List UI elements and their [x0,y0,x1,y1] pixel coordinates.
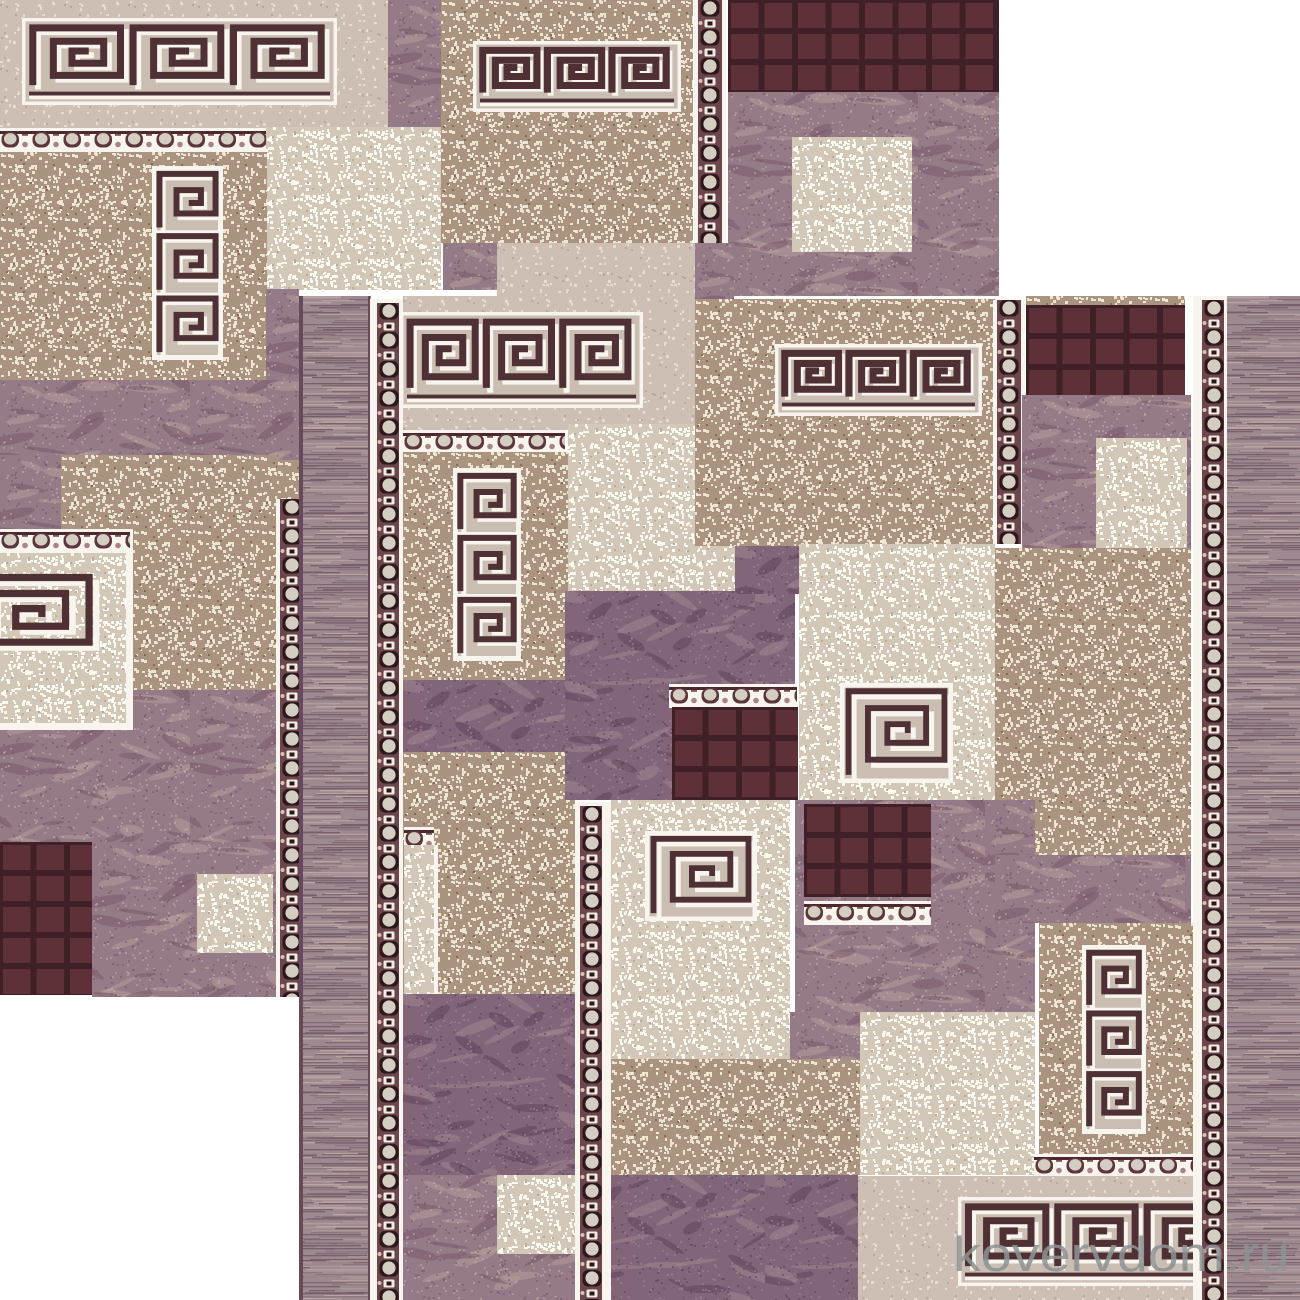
svg-text:kovervdom.ru: kovervdom.ru [953,1228,1290,1282]
